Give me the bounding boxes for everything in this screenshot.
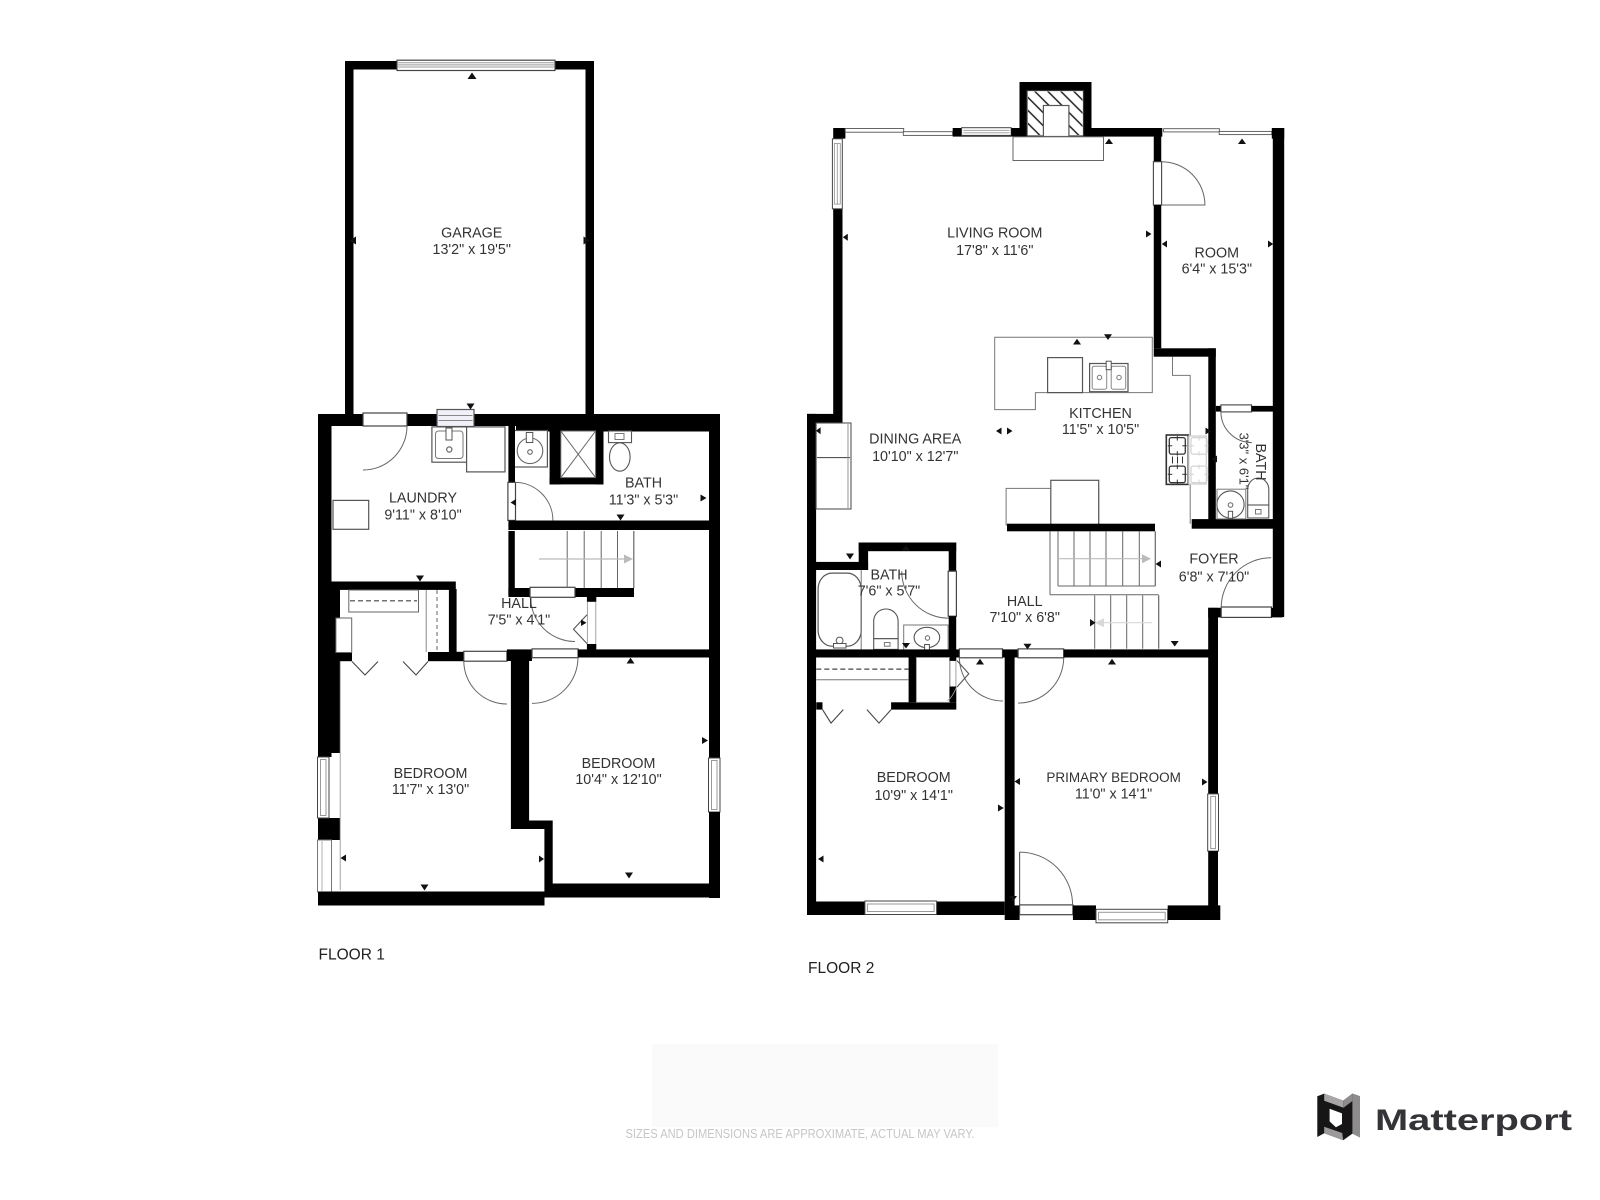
- svg-text:GARAGE: GARAGE: [441, 225, 502, 241]
- svg-text:6'8" x 7'10": 6'8" x 7'10": [1179, 570, 1249, 586]
- svg-text:9'11" x 8'10": 9'11" x 8'10": [384, 508, 461, 524]
- svg-text:6'4" x 15'3": 6'4" x 15'3": [1182, 262, 1252, 278]
- svg-text:7'6" x 5'7": 7'6" x 5'7": [858, 583, 921, 599]
- svg-text:LAUNDRY: LAUNDRY: [389, 491, 458, 507]
- svg-text:11'5" x 10'5": 11'5" x 10'5": [1062, 422, 1139, 438]
- svg-text:KITCHEN: KITCHEN: [1069, 406, 1132, 422]
- svg-text:LIVING ROOM: LIVING ROOM: [947, 225, 1042, 241]
- svg-text:PRIMARY BEDROOM: PRIMARY BEDROOM: [1046, 770, 1181, 785]
- svg-text:7'10" x 6'8": 7'10" x 6'8": [989, 610, 1059, 626]
- svg-text:ROOM: ROOM: [1195, 245, 1239, 261]
- svg-text:11'7" x 13'0": 11'7" x 13'0": [392, 782, 469, 798]
- svg-text:FLOOR 2: FLOOR 2: [808, 960, 874, 977]
- svg-text:11'3" x 5'3": 11'3" x 5'3": [609, 493, 678, 509]
- svg-text:11'0" x 14'1": 11'0" x 14'1": [1075, 787, 1152, 803]
- svg-text:Matterport: Matterport: [1375, 1104, 1572, 1137]
- svg-text:BATH: BATH: [1252, 443, 1268, 480]
- svg-text:3'3" x 6'1": 3'3" x 6'1": [1237, 433, 1252, 490]
- svg-text:FLOOR 1: FLOOR 1: [319, 947, 385, 964]
- svg-text:10'9" x 14'1": 10'9" x 14'1": [874, 788, 952, 804]
- svg-text:13'2" x 19'5": 13'2" x 19'5": [433, 242, 511, 258]
- svg-text:FOYER: FOYER: [1189, 552, 1238, 568]
- svg-text:BEDROOM: BEDROOM: [394, 766, 468, 782]
- svg-text:HALL: HALL: [501, 596, 537, 612]
- svg-text:BEDROOM: BEDROOM: [582, 756, 656, 772]
- svg-text:BATH: BATH: [870, 567, 907, 583]
- svg-text:17'8" x 11'6": 17'8" x 11'6": [956, 243, 1033, 259]
- svg-text:7'5" x 4'1": 7'5" x 4'1": [488, 612, 551, 628]
- svg-text:BATH: BATH: [625, 476, 662, 492]
- svg-text:10'10" x 12'7": 10'10" x 12'7": [872, 449, 958, 465]
- svg-text:DINING AREA: DINING AREA: [869, 432, 962, 448]
- svg-text:BEDROOM: BEDROOM: [877, 770, 951, 786]
- svg-text:SIZES AND DIMENSIONS ARE APPRO: SIZES AND DIMENSIONS ARE APPROXIMATE, AC…: [626, 1126, 975, 1141]
- svg-text:HALL: HALL: [1007, 594, 1043, 610]
- svg-text:10'4" x 12'10": 10'4" x 12'10": [575, 772, 661, 788]
